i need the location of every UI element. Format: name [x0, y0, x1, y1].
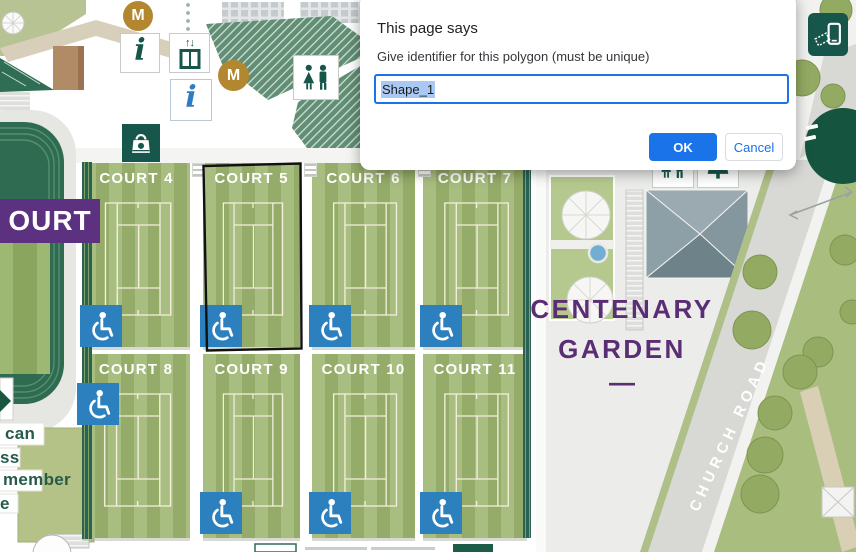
cropped-label-fragment: e [0, 494, 10, 514]
map-canvas[interactable]: COURT 4 COURT 5 [0, 0, 856, 552]
wheelchair-access-icon [309, 492, 351, 534]
court-lines [82, 354, 190, 538]
info-i-glyph: i [185, 83, 196, 117]
lift-door [178, 49, 202, 69]
lift-icon: ↑↓ [169, 33, 210, 73]
centenary-line1: CENTENARY [520, 294, 724, 325]
lift-arrows: ↑↓ [185, 38, 194, 49]
cropped-label-fragment: member [3, 470, 71, 490]
js-prompt-dialog: This page says Give identifier for this … [360, 0, 796, 170]
cropped-label-fragment: can [5, 424, 35, 444]
wheelchair-access-icon [200, 305, 242, 347]
wheelchair-access-icon [200, 492, 242, 534]
bag-glyph [127, 129, 155, 157]
toilets-figures [299, 64, 333, 92]
phone-ticket-glyph [813, 20, 843, 50]
cancel-button[interactable]: Cancel [725, 133, 783, 161]
court-8[interactable]: COURT 8 [82, 354, 190, 538]
left-luggage-icon [122, 124, 160, 162]
dialog-buttons: OK Cancel [649, 133, 783, 161]
court-label: COURT 4 [83, 170, 190, 187]
wheelchair-access-icon [420, 305, 462, 347]
court-label: COURT 7 [423, 170, 527, 187]
toilets-icon [293, 55, 339, 100]
court-label: COURT 5 [203, 170, 300, 187]
court-label: COURT 6 [312, 170, 415, 187]
court-4[interactable]: COURT 4 [83, 163, 190, 347]
cropped-label-fragment: ss [0, 448, 20, 468]
banner-text: OURT [8, 205, 91, 237]
info-i-glyph: i [134, 36, 145, 70]
centenary-line2: GARDEN [520, 334, 724, 365]
wheelchair-access-icon [420, 492, 462, 534]
court-label: COURT 10 [312, 361, 415, 378]
court-7[interactable]: COURT 7 [423, 163, 527, 347]
steps-mark [304, 163, 317, 177]
court-10[interactable]: COURT 10 [312, 354, 415, 538]
m-label: M [131, 7, 144, 25]
dialog-title: This page says [377, 20, 478, 37]
underground-station-badge: M [123, 1, 153, 31]
court-9[interactable]: COURT 9 [203, 354, 300, 538]
underground-station-badge: M [218, 60, 249, 91]
information-icon: i [120, 33, 160, 73]
centenary-garden-label: CENTENARY GARDEN — [520, 294, 724, 398]
centenary-dash: — [520, 367, 724, 398]
wheelchair-access-icon [77, 383, 119, 425]
wheelchair-access-icon [309, 305, 351, 347]
court-label: COURT 8 [82, 361, 190, 378]
steps-mark [192, 163, 205, 177]
input-selected-text: Shape_1 [381, 81, 435, 98]
court-name-banner-partial: OURT [0, 199, 100, 243]
court-label: COURT 9 [203, 361, 300, 378]
ok-button[interactable]: OK [649, 133, 717, 161]
court-label: COURT 11 [423, 361, 527, 378]
court-6[interactable]: COURT 6 [312, 163, 415, 347]
court-11[interactable]: COURT 11 [423, 354, 527, 538]
information-icon-blue: i [170, 79, 212, 121]
hedge-east [523, 162, 531, 538]
wheelchair-access-icon [80, 305, 122, 347]
dialog-message: Give identifier for this polygon (must b… [377, 49, 649, 64]
court-5[interactable]: COURT 5 [203, 163, 300, 347]
identifier-input[interactable]: Shape_1 [374, 74, 789, 104]
mobile-tickets-icon [808, 13, 848, 56]
m-label: M [227, 67, 240, 85]
